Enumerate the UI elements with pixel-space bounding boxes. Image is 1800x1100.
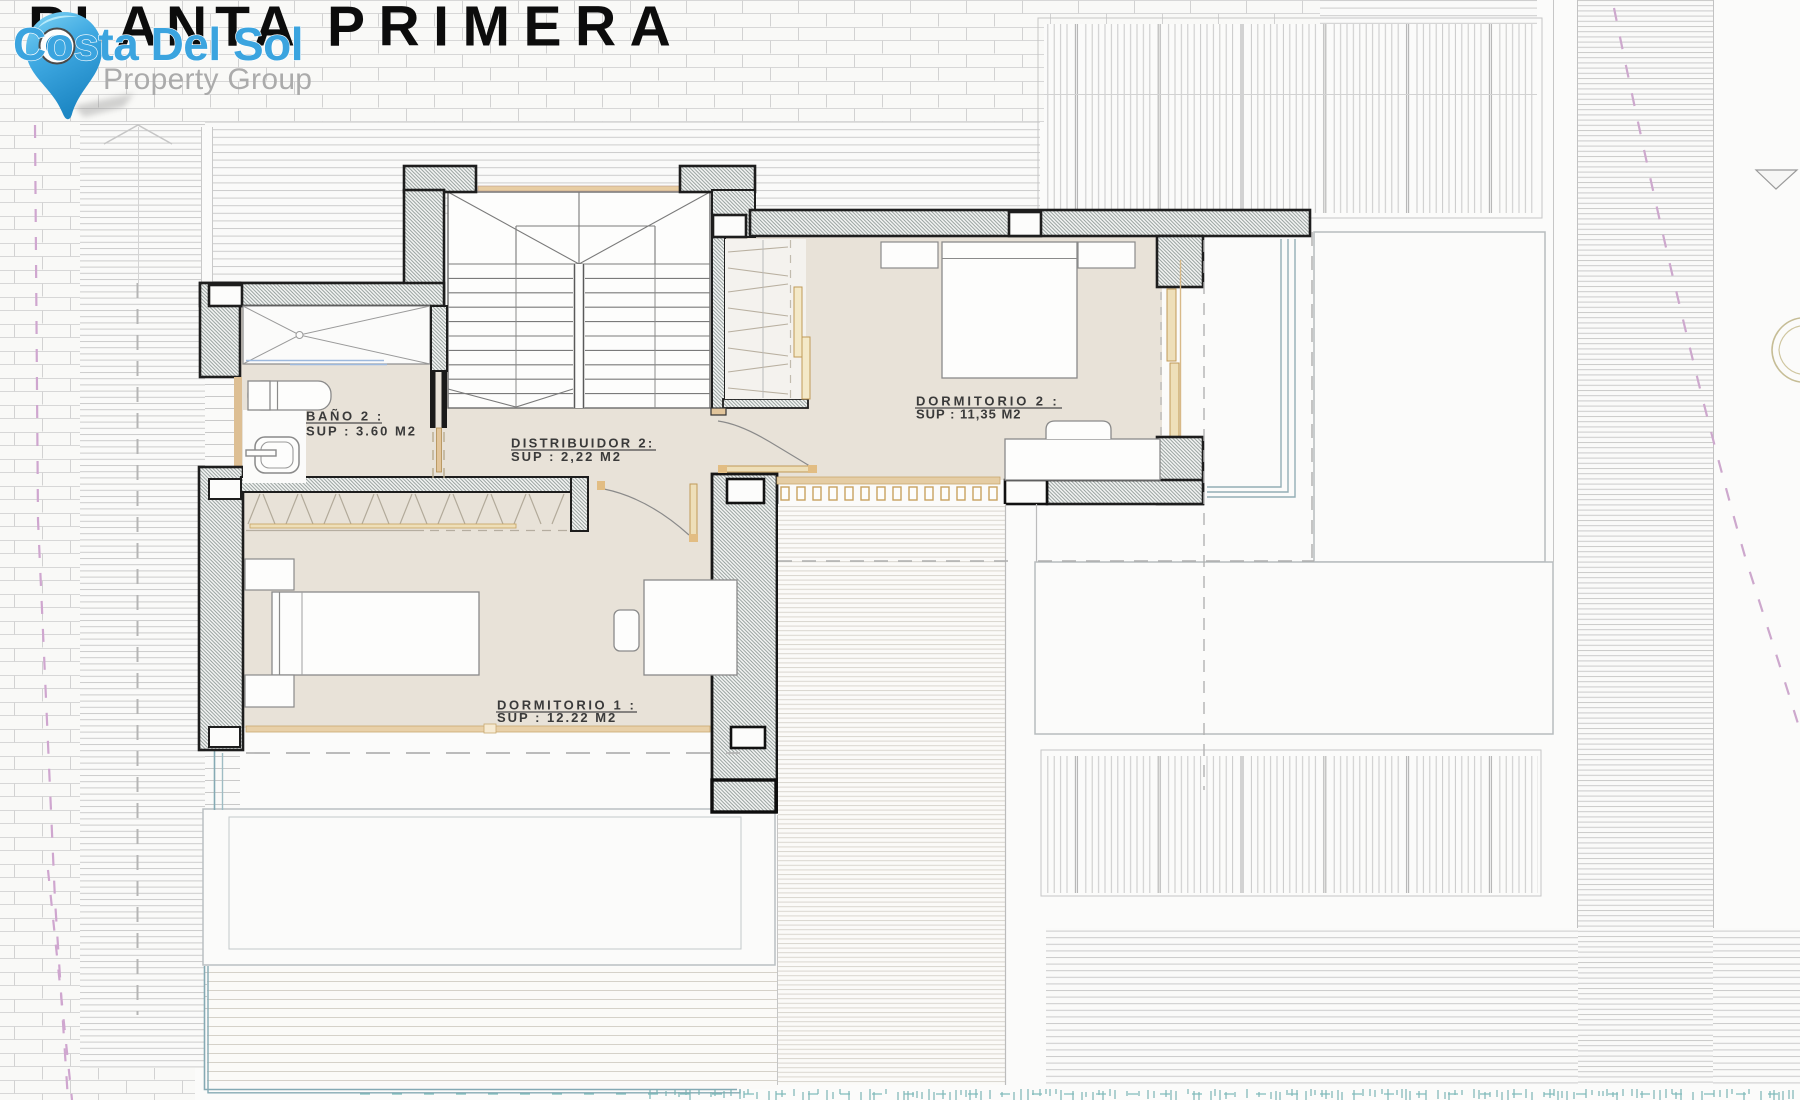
svg-text:Property Group: Property Group xyxy=(103,63,312,96)
svg-text:SUP : 11,35 M2: SUP : 11,35 M2 xyxy=(916,407,1022,422)
svg-text:SUP : 2,22 M2: SUP : 2,22 M2 xyxy=(511,449,622,464)
svg-text:BAÑO 2 :: BAÑO 2 : xyxy=(306,409,384,424)
svg-text:PRIMERA: PRIMERA xyxy=(327,0,684,59)
svg-text:SUP : 3.60 M2: SUP : 3.60 M2 xyxy=(306,424,417,439)
